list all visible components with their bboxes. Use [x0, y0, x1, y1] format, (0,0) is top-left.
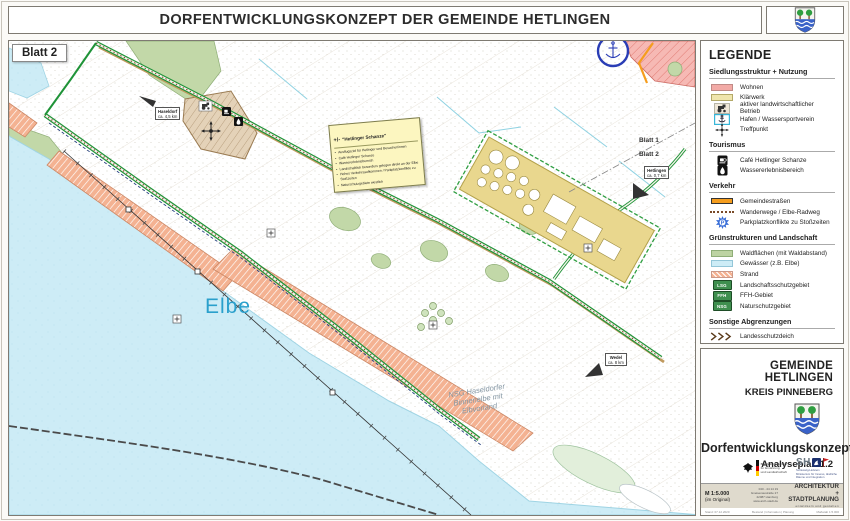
schanze-note-box: +/-"Hetlinger Schanze" Ausflugsziel für … — [328, 117, 426, 193]
title-block: GEMEINDE HETLINGEN KREIS PINNEBERG Dorfe… — [700, 348, 844, 516]
map-canvas: Elbe NSG Haseldorfer Binnenelbe mit Elbv… — [8, 40, 696, 516]
bmel-text: Bundesministerium für Ernährung und Land… — [761, 462, 787, 474]
plan-title: Dorfentwicklungskonzept — [701, 441, 833, 455]
header-coat-of-arms-box — [766, 6, 844, 34]
legend-item: Landesschutzdeich — [709, 332, 835, 343]
municipality-title: GEMEINDE HETLINGEN — [701, 360, 833, 384]
elbe-river-label: Elbe — [205, 295, 251, 318]
sh-abbr: SH — [796, 457, 811, 468]
legend-item: LSG Landschaftsschutzgebiet — [709, 280, 835, 291]
legend-section-heading: Verkehr — [709, 181, 835, 193]
wohnen-swatch — [711, 84, 733, 91]
svg-text:Blatt 1: Blatt 1 — [639, 137, 659, 144]
dike-chevrons-icon — [709, 332, 735, 341]
sh-ministry-text: Schleswig-Holstein Ministerium für Inner… — [796, 469, 837, 480]
legend-item: Wohnen — [709, 82, 835, 93]
legend-item: Gewässer (z.B. Elbe) — [709, 259, 835, 270]
office-logo: ARCHITEKTUR + STADTPLANUNG entwickeln un… — [783, 484, 839, 508]
lsg-badge-icon: LSG — [713, 280, 732, 290]
legend-item: aktiver landwirtschaftlicher Betrieb — [709, 103, 835, 114]
federal-eagle-icon — [742, 462, 754, 474]
legend-item: Strand — [709, 269, 835, 280]
nsg-badge-icon: NSG — [713, 301, 732, 311]
district-title: KREIS PINNEBERG — [701, 387, 833, 398]
road-swatch — [711, 198, 733, 204]
title-block-footer-bar: M 1:5.000 (im Original) 040 - 44 14 19 G… — [701, 483, 843, 508]
hetlingen-coat-of-arms-icon — [794, 403, 820, 435]
distance-label-hetlingen: Hetlingen ca. 0,7 km — [644, 166, 669, 179]
wald-swatch — [711, 250, 733, 257]
page-title: DORFENTWICKLUNGSKONZEPT DER GEMEINDE HET… — [160, 12, 611, 28]
legend-item: Café Hetlinger Schanze — [709, 155, 835, 166]
sh-horse-icon — [812, 458, 821, 467]
meeting-point-crosshair-icon — [709, 123, 735, 137]
farm-tractor-icon — [709, 103, 735, 114]
svg-text:Blatt 2: Blatt 2 — [639, 151, 659, 158]
legend-item: FFH FFH-Gebiet — [709, 290, 835, 301]
sheet-number-badge: Blatt 2 — [12, 44, 67, 62]
header: DORFENTWICKLUNGSKONZEPT DER GEMEINDE HET… — [8, 6, 762, 34]
title-block-footnote: Stand: 07.12.2020 Bestand | Information … — [705, 510, 839, 514]
legend-item: Waldflächen (mit Waldabstand) — [709, 248, 835, 259]
distance-label-haseldorf: Haseldorf ca. 4,5 km — [155, 107, 180, 120]
parking-conflict-icon: P — [709, 216, 735, 229]
map-graphic: Elbe NSG Haseldorfer Binnenelbe mit Elbv… — [9, 41, 695, 515]
office-contact: 040 - 44 14 19 Gneisenaustraße 27 22087 … — [743, 488, 783, 504]
wasser-swatch — [711, 260, 733, 267]
legend-section-heading: Siedlungsstruktur + Nutzung — [709, 67, 835, 79]
trail-dotted-swatch — [710, 211, 734, 213]
note-box-bullets: Ausflugsziel für Hetlinger und Besucher/… — [334, 143, 421, 187]
note-box-sign: +/- — [333, 137, 340, 144]
schleswig-holstein-logo: SH Schleswig-Holstein Ministerium für In… — [796, 457, 837, 480]
legend-section-heading: Grünstrukturen und Landschaft — [709, 233, 835, 245]
plan-sheet: DORFENTWICKLUNGSKONZEPT DER GEMEINDE HET… — [0, 0, 850, 521]
funder-logos: Bundesministerium für Ernährung und Land… — [701, 457, 837, 480]
legend-item: Gemeindestraßen — [709, 196, 835, 207]
hetlingen-coat-of-arms-icon — [792, 7, 818, 33]
legend-item: NSG Naturschutzgebiet — [709, 301, 835, 312]
legend-section-heading: Tourismus — [709, 140, 835, 152]
water-droplet-icon — [709, 165, 735, 176]
titleblock-coat-of-arms — [701, 403, 820, 435]
cafe-icon — [222, 107, 231, 116]
legend-item: Wassererlebnisbereich — [709, 166, 835, 177]
tractor-icon — [199, 101, 212, 111]
strand-swatch — [711, 271, 733, 278]
water-droplet-icon — [234, 117, 243, 126]
cafe-icon — [709, 155, 735, 166]
legend-item: P Parkplatzkonflikte zu Stoßzeiten — [709, 217, 835, 228]
distance-label-wedel: Wedel ca. 8 km — [605, 353, 627, 366]
german-flag-stripe — [756, 460, 759, 476]
legend-panel: LEGENDE Siedlungsstruktur + Nutzung Wohn… — [700, 40, 844, 344]
legend-title: LEGENDE — [709, 48, 835, 62]
powerline-symbol-icon — [709, 343, 735, 344]
bmel-logo: Bundesministerium für Ernährung und Land… — [742, 460, 787, 476]
ffh-badge-icon: FFH — [713, 291, 732, 301]
legend-item: Treffpunkt — [709, 124, 835, 135]
legend-item: Hochspannungsleitung — [709, 342, 835, 344]
legend-section-heading: Sonstige Abgrenzungen — [709, 317, 835, 329]
sh-pennant-icon — [823, 458, 829, 467]
svg-text:P: P — [720, 221, 724, 227]
map-scale: M 1:5.000 (im Original) — [705, 491, 743, 502]
klaerwerk-swatch — [711, 94, 733, 101]
